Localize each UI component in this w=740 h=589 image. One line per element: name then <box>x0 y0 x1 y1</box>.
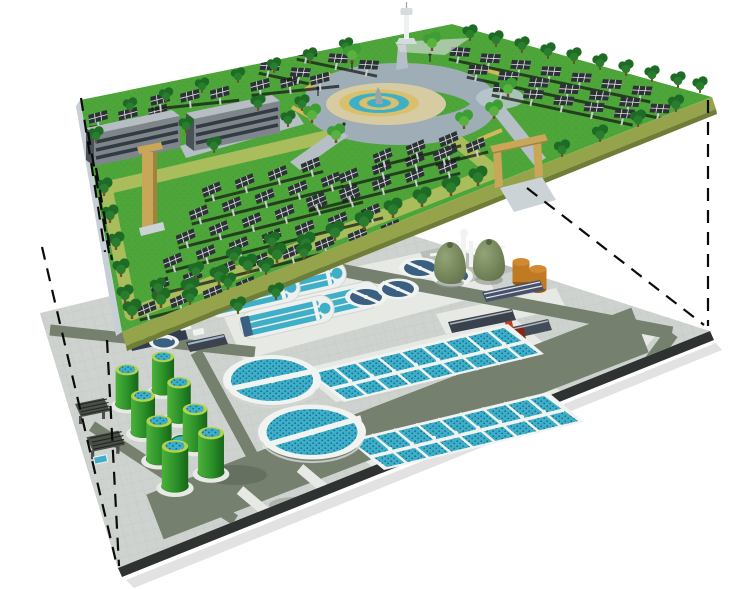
pipe-joint <box>460 229 468 237</box>
digester-pipe <box>469 241 473 267</box>
tree <box>692 76 707 93</box>
orange-storage-tank <box>513 258 530 286</box>
digester-tank <box>156 440 193 497</box>
small-clarifier <box>377 279 419 300</box>
digester-tank <box>193 427 230 483</box>
clarifier-hub <box>309 429 315 435</box>
tower-column <box>404 12 409 39</box>
large-clarifier-1 <box>223 355 321 407</box>
egg-digester <box>473 239 505 285</box>
tree <box>670 71 685 88</box>
large-clarifier-2 <box>258 405 366 463</box>
exploded-view-diagram <box>0 0 740 589</box>
illustration-canvas <box>0 0 740 589</box>
clarifier-hub <box>269 377 275 383</box>
pillar-shadow <box>153 152 157 230</box>
tower-head <box>401 8 413 15</box>
